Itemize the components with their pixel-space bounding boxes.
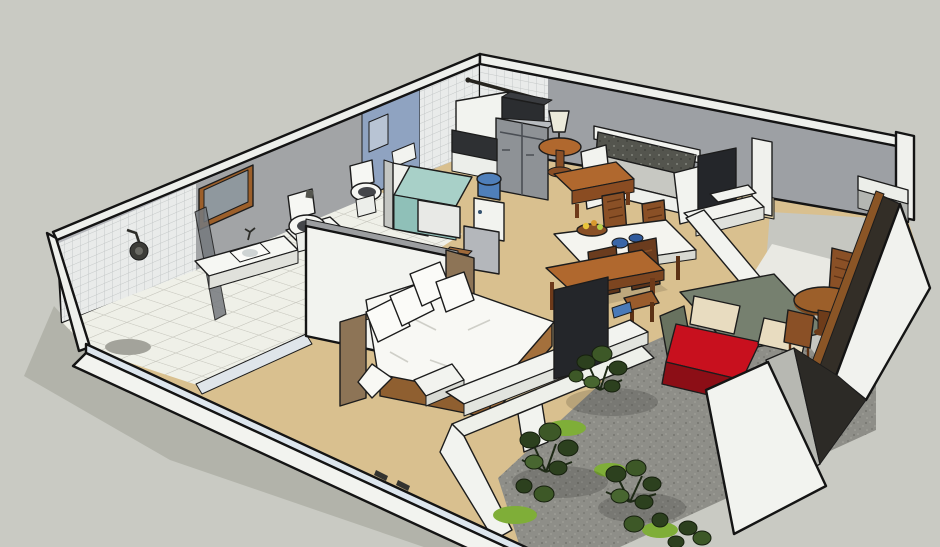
- bath-partition-side: [384, 160, 393, 229]
- apartment-scene: [0, 0, 940, 547]
- table-leg: [676, 256, 680, 280]
- flush-button: [305, 190, 313, 199]
- shower-mat: [105, 339, 151, 355]
- floorplan-render: [0, 0, 940, 547]
- grass-patch: [493, 506, 537, 524]
- fruit: [597, 224, 603, 230]
- wood-pillar-left: [340, 314, 366, 406]
- lamp-shade: [549, 111, 569, 132]
- table-leg: [626, 192, 630, 205]
- fruit: [583, 223, 589, 229]
- table-leg: [575, 204, 579, 218]
- fruit: [591, 220, 597, 226]
- towel-bar-knob: [465, 77, 470, 82]
- shower-spray: [135, 247, 143, 255]
- counter-block: [418, 200, 460, 238]
- sink-bowl: [242, 249, 258, 257]
- dispenser-tap: [478, 210, 482, 214]
